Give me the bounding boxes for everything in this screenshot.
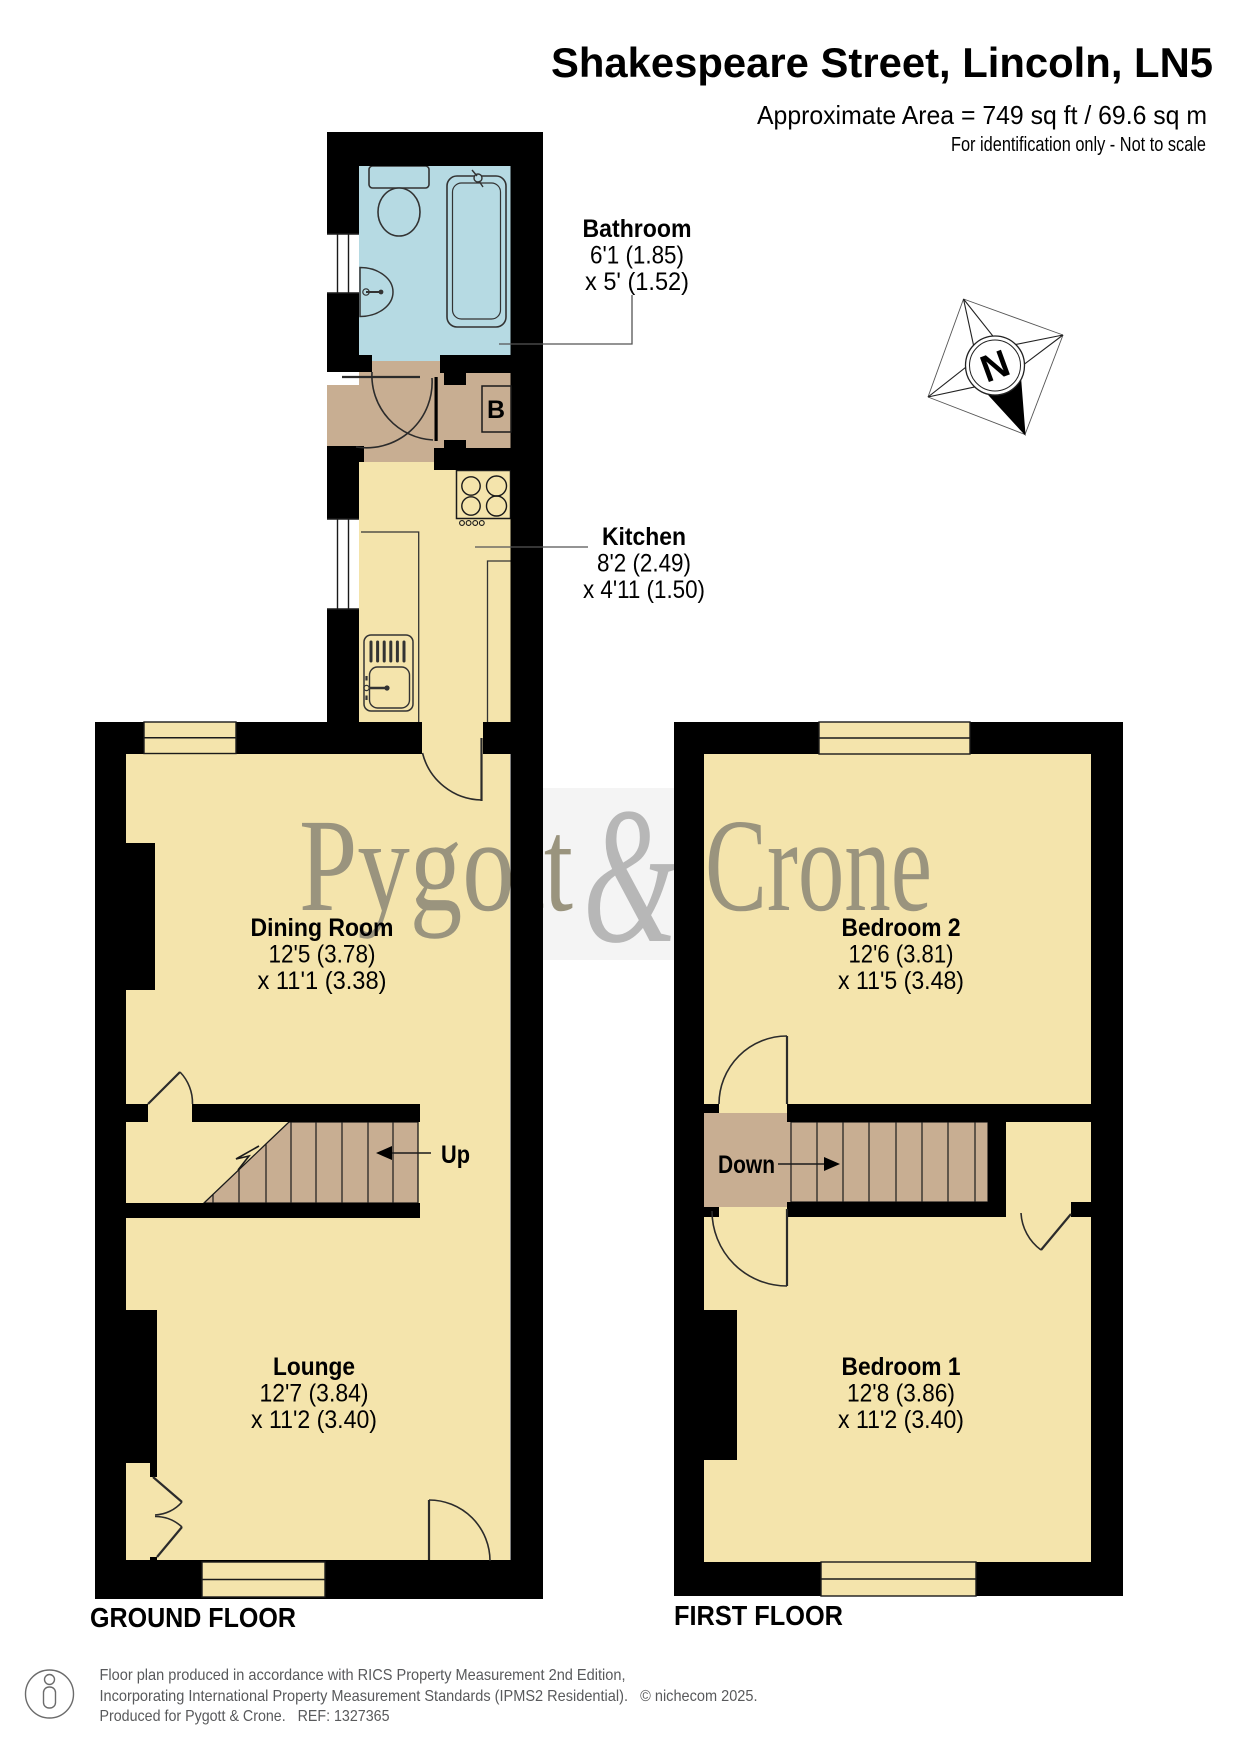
svg-text:FIRST FLOOR: FIRST FLOOR	[674, 1600, 843, 1631]
svg-text:Shakespeare Street, Lincoln, L: Shakespeare Street, Lincoln, LN5	[551, 39, 1213, 86]
svg-text:&: &	[583, 768, 678, 984]
svg-text:Kitchen: Kitchen	[602, 523, 686, 551]
svg-text:12'5 (3.78): 12'5 (3.78)	[269, 941, 376, 969]
svg-text:12'7 (3.84): 12'7 (3.84)	[260, 1380, 369, 1408]
svg-text:Produced for Pygott & Crone.: Produced for Pygott & Crone. REF: 132736…	[100, 1708, 390, 1725]
svg-text:12'6 (3.81): 12'6 (3.81)	[849, 941, 954, 969]
svg-text:Bathroom: Bathroom	[583, 215, 692, 243]
svg-text:Incorporating International Pr: Incorporating International Property Mea…	[100, 1688, 758, 1705]
svg-text:x 11'2 (3.40): x 11'2 (3.40)	[251, 1406, 377, 1434]
svg-text:Up: Up	[441, 1141, 470, 1169]
svg-text:Bedroom 2: Bedroom 2	[842, 914, 961, 942]
svg-text:Approximate Area = 749 sq ft /: Approximate Area = 749 sq ft / 69.6 sq m	[757, 100, 1207, 130]
svg-text:For identification only - Not: For identification only - Not to scale	[951, 134, 1206, 156]
svg-text:Bedroom 1: Bedroom 1	[842, 1353, 961, 1381]
svg-text:x 5' (1.52): x 5' (1.52)	[585, 268, 689, 296]
svg-text:B: B	[487, 396, 505, 424]
svg-text:x 11'1 (3.38): x 11'1 (3.38)	[258, 967, 387, 995]
svg-text:Down: Down	[718, 1151, 775, 1179]
svg-text:Lounge: Lounge	[273, 1353, 355, 1381]
svg-text:Dining Room: Dining Room	[251, 914, 394, 942]
svg-text:GROUND FLOOR: GROUND FLOOR	[90, 1602, 296, 1633]
svg-text:x 4'11 (1.50): x 4'11 (1.50)	[583, 576, 705, 604]
svg-text:Floor plan produced in accorda: Floor plan produced in accordance with R…	[100, 1667, 626, 1684]
svg-text:x 11'5 (3.48): x 11'5 (3.48)	[838, 967, 964, 995]
svg-text:6'1 (1.85): 6'1 (1.85)	[590, 242, 684, 270]
svg-text:8'2 (2.49): 8'2 (2.49)	[597, 550, 691, 578]
svg-text:12'8 (3.86): 12'8 (3.86)	[847, 1380, 955, 1408]
svg-text:x 11'2 (3.40): x 11'2 (3.40)	[838, 1406, 964, 1434]
